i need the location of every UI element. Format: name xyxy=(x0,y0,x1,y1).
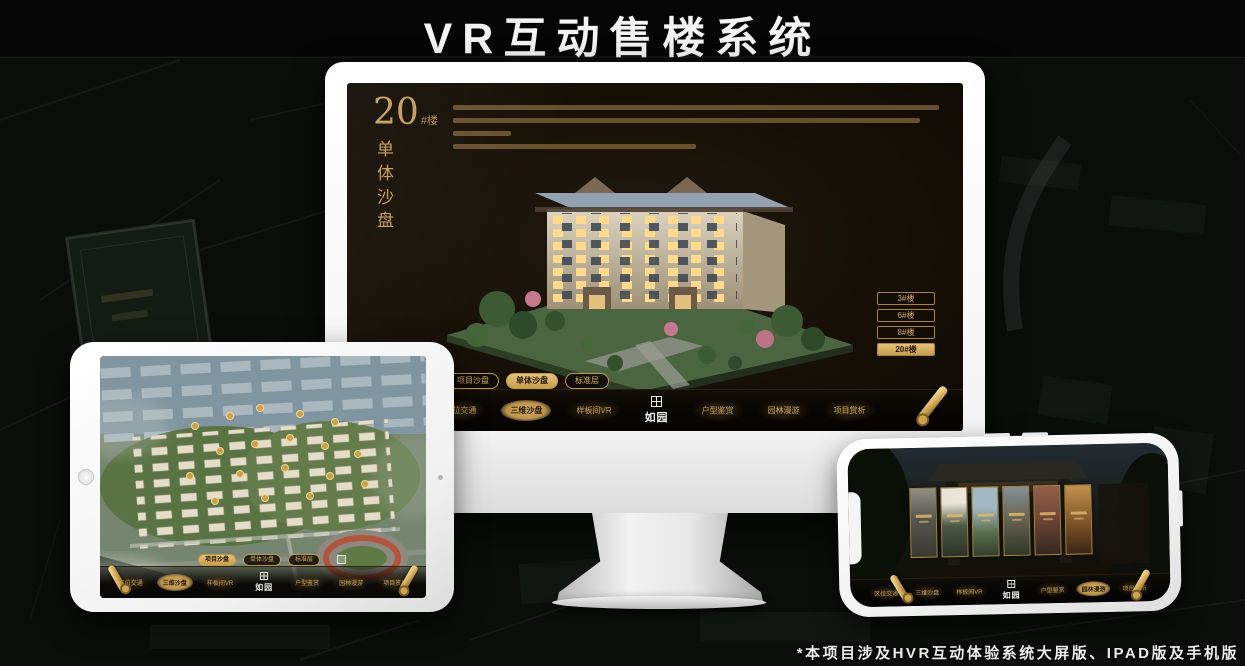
logo-text: 如园 xyxy=(255,582,273,593)
building-selector: 3#楼 6#楼 8#楼 20#楼 xyxy=(877,292,937,360)
nav-item-garden-roam[interactable]: 园林漫游 xyxy=(759,400,809,421)
nav-item-3d-sandbox[interactable]: 三维沙盘 xyxy=(157,574,193,591)
screen-headline: 20#楼 单体沙盘 xyxy=(373,95,438,234)
gallery-panel[interactable] xyxy=(909,488,937,559)
nav-item-floorplans[interactable]: 户型鉴赏 xyxy=(289,574,325,591)
building-button-6[interactable]: 6#楼 xyxy=(877,309,935,322)
tab-project-sandbox[interactable]: 项目沙盘 xyxy=(198,554,236,566)
tab-single-sandbox[interactable]: 单体沙盘 xyxy=(243,554,281,566)
logo-seal-icon xyxy=(1007,580,1015,588)
nav-item-garden-roam[interactable]: 园林漫游 xyxy=(1076,581,1110,597)
paragraph-line xyxy=(453,131,511,136)
volume-button[interactable] xyxy=(984,433,1010,438)
app-logo: 如园 xyxy=(255,572,273,593)
phone-notch xyxy=(848,492,862,564)
app-logo: 如园 xyxy=(645,396,669,425)
nav-item-3d-sandbox[interactable]: 三维沙盘 xyxy=(910,584,944,600)
page-title: VR互动售楼系统 xyxy=(0,4,1245,66)
home-button[interactable] xyxy=(78,469,94,485)
nav-item-floorplans[interactable]: 户型鉴赏 xyxy=(693,400,743,421)
nav-item-showroom-vr[interactable]: 样板间VR xyxy=(951,583,988,599)
tablet-device: 项目沙盘 单体沙盘 标准层 区位交通 三维沙盘 样板间VR 如园 户型鉴赏 园林… xyxy=(70,342,454,612)
tab-standard-floor[interactable]: 标准层 xyxy=(565,373,609,389)
logo-seal-icon xyxy=(260,572,268,580)
nav-item-showroom-vr[interactable]: 样板间VR xyxy=(201,574,239,591)
building-number-suffix: #楼 xyxy=(421,115,438,127)
nav-item-3d-sandbox[interactable]: 三维沙盘 xyxy=(501,400,551,421)
nav-item-project-gallery[interactable]: 项目赏析 xyxy=(825,400,875,421)
headline-vertical-text: 单体沙盘 xyxy=(377,139,397,234)
tablet-navbar: 区位交通 三维沙盘 样板间VR 如园 户型鉴赏 园林漫游 项目赏析 xyxy=(100,566,426,598)
nav-item-floorplans[interactable]: 户型鉴赏 xyxy=(1035,582,1069,598)
power-button[interactable] xyxy=(1178,490,1183,526)
logo-text: 如园 xyxy=(645,409,669,425)
tab-standard-floor[interactable]: 标准层 xyxy=(288,554,320,566)
logo-text: 如园 xyxy=(1003,590,1021,601)
gallery-panel[interactable] xyxy=(971,486,999,557)
phone-screen: 区位交通 三维沙盘 样板间VR 如园 户型鉴赏 园林漫游 项目赏析 xyxy=(847,443,1170,608)
building-3d-model[interactable] xyxy=(435,149,865,389)
phone-device: 区位交通 三维沙盘 样板间VR 如园 户型鉴赏 园林漫游 项目赏析 xyxy=(836,432,1182,617)
footnote: *本项目涉及HVR互动体验系统大屏版、IPAD版及手机版 xyxy=(797,642,1239,663)
app-logo: 如园 xyxy=(1002,580,1020,601)
monitor-view-tabs: 项目沙盘 单体沙盘 标准层 xyxy=(447,373,609,389)
nav-item-showroom-vr[interactable]: 样板间VR xyxy=(567,400,620,421)
promo-canvas: VR互动售楼系统 20#楼 单体沙盘 xyxy=(0,0,1245,666)
volume-button[interactable] xyxy=(1022,432,1048,437)
gallery-panel[interactable] xyxy=(1002,486,1030,557)
tab-single-sandbox[interactable]: 单体沙盘 xyxy=(506,373,558,389)
camera-dot-icon xyxy=(438,475,443,480)
building-button-8[interactable]: 8#楼 xyxy=(877,326,935,339)
building-button-20[interactable]: 20#楼 xyxy=(877,343,935,356)
tab-project-sandbox[interactable]: 项目沙盘 xyxy=(447,373,499,389)
paragraph-line xyxy=(453,105,939,110)
building-number: 20 xyxy=(373,92,419,133)
logo-seal-icon xyxy=(651,396,662,407)
nav-item-garden-roam[interactable]: 园林漫游 xyxy=(333,574,369,591)
gallery-panel[interactable] xyxy=(940,487,968,558)
building-button-3[interactable]: 3#楼 xyxy=(877,292,935,305)
paragraph-line xyxy=(453,118,920,123)
monitor-base xyxy=(552,596,766,609)
gallery-panel[interactable] xyxy=(1064,484,1092,555)
tablet-screen: 项目沙盘 单体沙盘 标准层 区位交通 三维沙盘 样板间VR 如园 户型鉴赏 园林… xyxy=(100,356,426,598)
gallery-panel[interactable] xyxy=(1033,485,1061,556)
tablet-view-tabs: 项目沙盘 单体沙盘 标准层 xyxy=(198,554,320,566)
compass-icon xyxy=(337,555,346,564)
